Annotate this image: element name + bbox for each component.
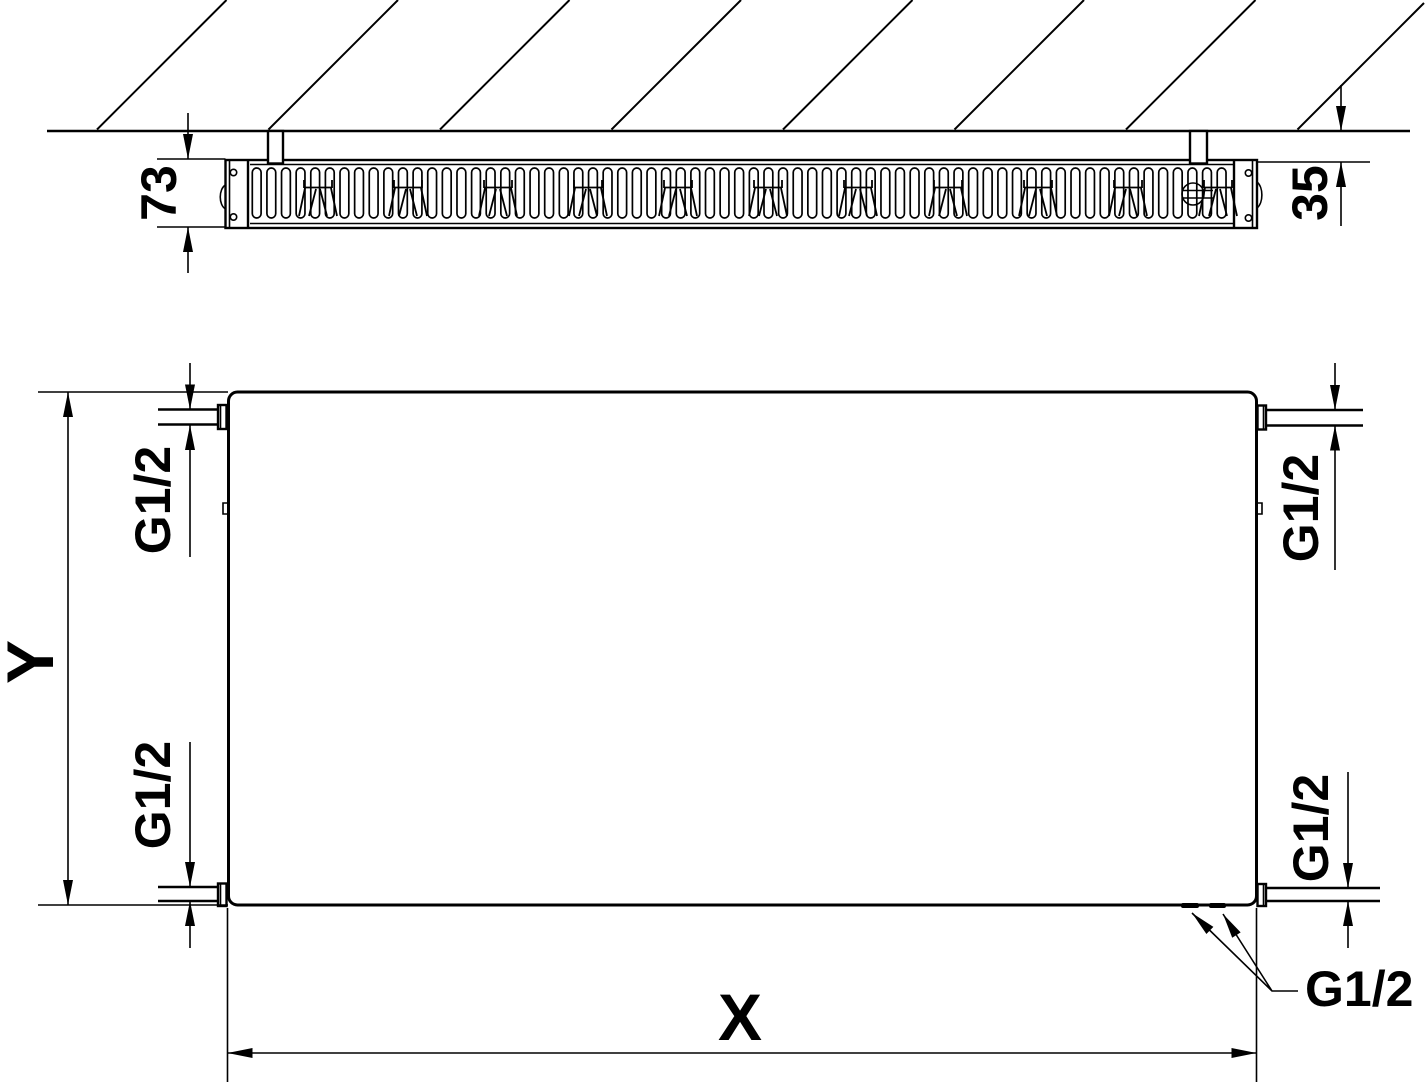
section-view: 73 35: [47, 0, 1424, 273]
connection-stub-bottom-left: [158, 884, 227, 907]
connection-stub-top-left: [158, 405, 227, 429]
dimension-connection-bottom-left: G1/2: [125, 741, 190, 948]
connection-label-drain: G1/2: [1305, 961, 1413, 1017]
dimension-wall-gap-35: 35: [1257, 85, 1370, 226]
mounting-bracket-left: [268, 131, 283, 164]
connection-label-bottom-left: G1/2: [125, 741, 181, 849]
connection-stub-top-right: [1258, 406, 1364, 430]
radiator-dimension-drawing: 73 35: [0, 0, 1425, 1089]
dimension-width-label: X: [718, 980, 762, 1054]
dimension-depth-73: 73: [131, 113, 226, 273]
drain-plug-2: [1209, 903, 1226, 908]
dimension-width-X: X: [228, 908, 1257, 1082]
dimension-height-label: Y: [0, 640, 67, 684]
leader-drain-connections: G1/2: [1192, 913, 1413, 1017]
front-view: Y X G1/2 G1/2 G1/2 G1/2: [0, 363, 1413, 1082]
dimension-height-Y: Y: [0, 392, 228, 905]
connection-label-top-left: G1/2: [125, 446, 181, 554]
connection-label-top-right: G1/2: [1273, 454, 1329, 562]
technical-drawing-canvas: 73 35: [0, 0, 1425, 1089]
drain-plug-1: [1181, 903, 1199, 908]
dimension-depth-label: 73: [131, 165, 187, 221]
dimension-wall-gap-label: 35: [1282, 165, 1338, 221]
wall-hatching: [97, 0, 1424, 130]
mounting-bracket-right: [1190, 131, 1207, 164]
dimension-connection-bottom-right: G1/2: [1283, 772, 1348, 948]
radiator-panel-outline: [229, 392, 1257, 905]
dimension-connection-top-right: G1/2: [1273, 363, 1335, 570]
connection-label-bottom-right: G1/2: [1283, 774, 1339, 882]
connection-stub-bottom-right: [1258, 884, 1381, 906]
radiator-cross-section: [220, 131, 1262, 228]
